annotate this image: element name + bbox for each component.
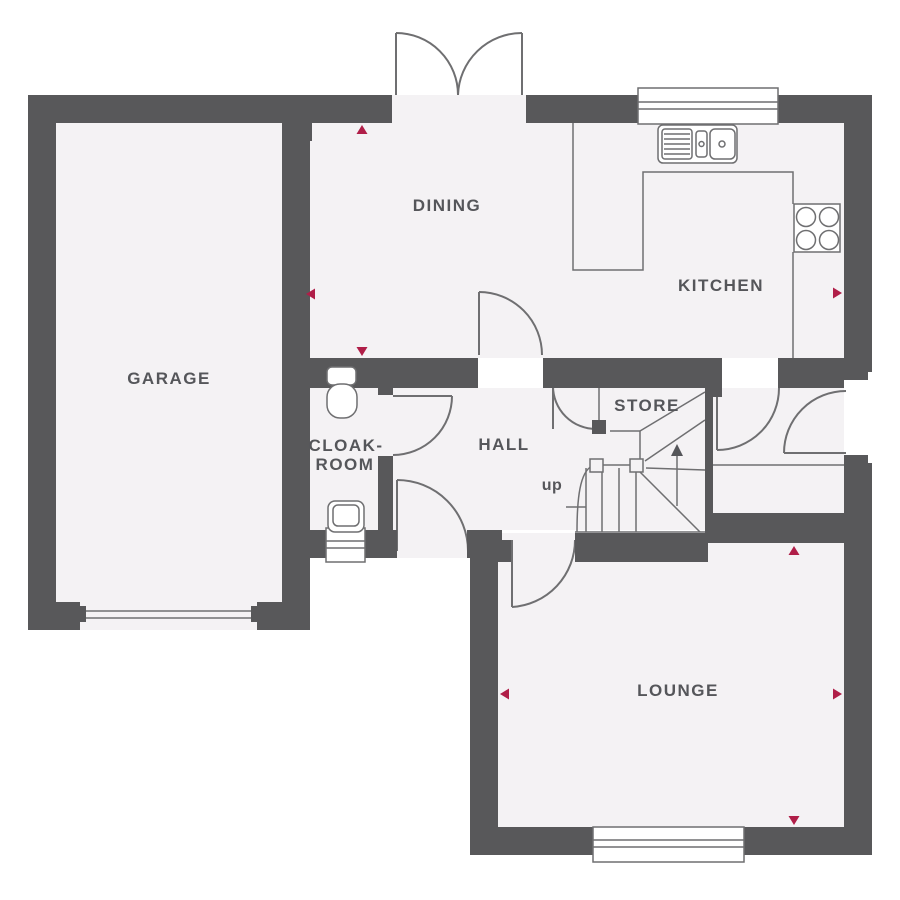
garage-door-jamb bbox=[76, 606, 86, 622]
wall-stairs-east bbox=[705, 388, 713, 533]
french-doors-icon bbox=[396, 33, 522, 95]
stairs-up-label: up bbox=[542, 477, 563, 494]
garage-floor bbox=[56, 123, 282, 602]
room-label-cloakroom-line1: CLOAK- bbox=[308, 436, 383, 455]
wall-west bbox=[28, 95, 56, 630]
wall-lounge-door-jamb bbox=[498, 540, 511, 562]
hob-ring bbox=[820, 208, 839, 227]
wall-backdoor-jamb-top bbox=[844, 372, 868, 380]
room-label-kitchen: KITCHEN bbox=[678, 276, 764, 295]
room-label-dining: DINING bbox=[413, 196, 482, 215]
stair-newel-post bbox=[630, 459, 643, 472]
front-door-threshold bbox=[397, 530, 467, 558]
sink-drain bbox=[699, 142, 704, 147]
floor-plan-page: GARAGE DINING KITCHEN CLOAK- ROOM HALL S… bbox=[0, 0, 900, 900]
wall-kitchen-south-east bbox=[778, 358, 844, 388]
garage-door-jamb bbox=[251, 606, 261, 622]
door-swing-arc bbox=[458, 33, 522, 95]
cloakroom-window-icon bbox=[326, 528, 365, 562]
wall-lounge-south-west bbox=[470, 827, 595, 855]
floor-plan-svg: GARAGE DINING KITCHEN CLOAK- ROOM HALL S… bbox=[0, 0, 900, 900]
wall-cloakroom-east-lower bbox=[378, 456, 393, 530]
room-label-hall: HALL bbox=[478, 435, 529, 454]
stair-newel-post bbox=[590, 459, 603, 472]
wall-garage-east bbox=[282, 123, 310, 602]
wall-kitchen-door-pier bbox=[705, 358, 722, 397]
dining-kitchen-floor bbox=[310, 123, 844, 358]
wall-lounge-west bbox=[470, 535, 498, 855]
kitchen-window-icon bbox=[638, 88, 778, 124]
room-label-store: STORE bbox=[614, 396, 680, 415]
wall-kitchen-south-west bbox=[543, 358, 717, 388]
wall-store-door-pier bbox=[592, 420, 606, 434]
wc-cistern bbox=[327, 367, 356, 385]
room-label-lounge: LOUNGE bbox=[637, 681, 719, 700]
wc-icon bbox=[327, 367, 357, 418]
wash-basin-icon bbox=[328, 501, 364, 532]
basin-bowl bbox=[333, 505, 359, 526]
wall-garage-bottom-east bbox=[257, 602, 310, 630]
wall-pier bbox=[282, 123, 312, 141]
window-frame bbox=[638, 88, 778, 124]
wall-backdoor-jamb-bottom bbox=[844, 455, 868, 463]
hob-ring bbox=[820, 231, 839, 250]
wall-lounge-north-east bbox=[708, 513, 844, 543]
wall-east-lower bbox=[844, 463, 872, 855]
wall-stairs-south bbox=[575, 533, 708, 562]
wall-lounge-south-east bbox=[742, 827, 872, 855]
garage-door-threshold bbox=[80, 602, 257, 630]
window-frame bbox=[326, 528, 365, 562]
hob-ring bbox=[797, 208, 816, 227]
wc-bowl bbox=[327, 384, 357, 418]
sink-drain bbox=[719, 141, 725, 147]
lounge-window-icon bbox=[593, 827, 744, 862]
wall-top-mid bbox=[526, 95, 638, 123]
wall-garage-bottom-west bbox=[28, 602, 80, 630]
hob-ring bbox=[797, 231, 816, 250]
wall-top-west bbox=[28, 95, 392, 123]
room-label-garage: GARAGE bbox=[127, 369, 211, 388]
door-swing-arc bbox=[396, 33, 458, 95]
window-frame bbox=[593, 827, 744, 862]
rear-lobby-floor bbox=[713, 463, 844, 515]
wall-east-upper bbox=[844, 95, 872, 372]
kitchen-sink-icon bbox=[658, 125, 737, 163]
hob-icon bbox=[794, 204, 840, 252]
wall-cloakroom-east-upper bbox=[378, 388, 393, 395]
french-door-threshold bbox=[392, 95, 526, 123]
room-label-cloakroom-line2: ROOM bbox=[316, 455, 375, 474]
